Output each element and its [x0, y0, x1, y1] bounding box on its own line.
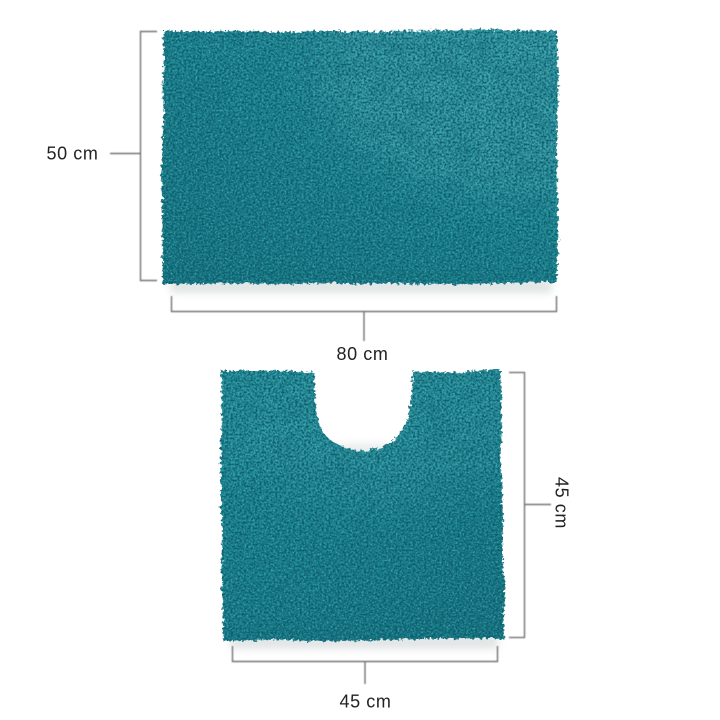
svg-text:80 cm: 80 cm [336, 344, 388, 364]
svg-text:50 cm: 50 cm [46, 144, 98, 164]
svg-text:45 cm: 45 cm [339, 692, 391, 712]
svg-text:45 cm: 45 cm [552, 477, 572, 529]
